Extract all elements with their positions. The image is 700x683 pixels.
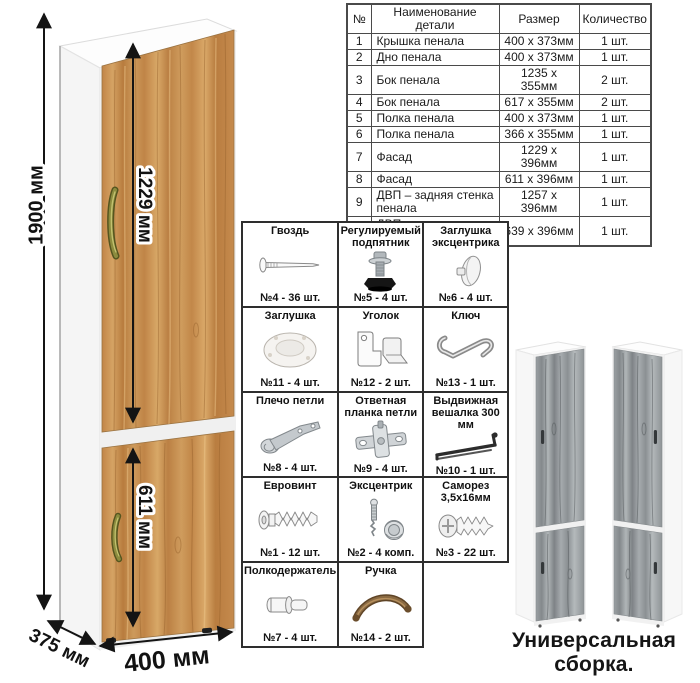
cell-name: Дно пенала: [371, 50, 499, 66]
cam-lock-icon: [352, 492, 410, 547]
hardware-count: №7 - 4 шт.: [263, 632, 317, 644]
cell-name: Бок пенала: [371, 66, 499, 95]
header-num: №: [347, 4, 371, 34]
upper-door-dimension-label: 1229 мм: [134, 167, 155, 243]
hardware-title: Уголок: [363, 310, 399, 322]
cell-name: Бок пенала: [371, 95, 499, 111]
hardware-cell-plug: Заглушка №11 - 4 шт.: [242, 307, 338, 392]
cell-qty: 2 шт.: [579, 95, 651, 111]
cabinet-foot-right: [202, 628, 212, 634]
hardware-cell-euro-screw: Евровинт №1 - 12 шт.: [242, 477, 338, 562]
cell-size: 400 х 373мм: [499, 50, 579, 66]
cell-num: 4: [347, 95, 371, 111]
table-row: 9 ДВП – задняя стенка пенала 1257 х 396м…: [347, 188, 651, 217]
header-name: Наименование детали: [371, 4, 499, 34]
hardware-title: Заглушка эксцентрика: [425, 225, 506, 249]
cell-num: 3: [347, 66, 371, 95]
cell-size: 639 х 396мм: [499, 217, 579, 247]
cell-num: 6: [347, 127, 371, 143]
lower-door-dimension-label: 611 мм: [134, 485, 155, 549]
hardware-title: Выдвижная вешалка 300 мм: [425, 395, 506, 431]
hardware-title: Гвоздь: [271, 225, 309, 237]
cell-name: Крышка пенала: [371, 34, 499, 50]
hardware-cell-corner-bracket: Уголок №12 - 2 шт.: [338, 307, 423, 392]
hardware-title: Ручка: [365, 565, 396, 577]
hardware-count: №2 - 4 комп.: [347, 547, 414, 559]
hardware-cell-shelf-pin: Полкодержатель №7 - 4 шт.: [242, 562, 338, 647]
euro-screw-icon: [255, 492, 325, 547]
cell-qty: 1 шт.: [579, 143, 651, 172]
cabinet-side-panel: [60, 46, 100, 650]
table-row: 8 Фасад 611 х 396мм 1 шт.: [347, 172, 651, 188]
parts-table: № Наименование детали Размер Количество …: [346, 3, 652, 247]
height-dimension-label: 1900 мм: [25, 165, 47, 245]
hardware-count: №6 - 4 шт.: [439, 292, 493, 304]
self-tapping-screw-icon: [435, 504, 497, 547]
cell-qty: 1 шт.: [579, 172, 651, 188]
table-row: 7 Фасад 1229 х 396мм 1 шт.: [347, 143, 651, 172]
mini-cabinet-left: [516, 342, 586, 628]
cell-name: Фасад: [371, 172, 499, 188]
cell-name: Полка пенала: [371, 127, 499, 143]
hardware-cell-cam-cover: Заглушка эксцентрика №6 - 4 шт.: [423, 222, 508, 307]
hardware-title: Плечо петли: [256, 395, 324, 407]
hardware-count: №3 - 22 шт.: [436, 547, 496, 559]
hardware-title: Саморез 3,5х16мм: [425, 480, 506, 504]
hardware-title: Регулируемый подпятник: [340, 225, 421, 249]
hardware-cell-hinge-plate: Ответная планка петли №9 - 4 шт.: [338, 392, 423, 477]
table-row: 2 Дно пенала 400 х 373мм 1 шт.: [347, 50, 651, 66]
table-row: 4 Бок пенала 617 х 355мм 2 шт.: [347, 95, 651, 111]
upper-door: [102, 30, 234, 432]
shelf-pin-icon: [262, 577, 318, 632]
hardware-grid: Гвоздь №4 - 36 шт. Регулируемый подпятни…: [241, 221, 509, 648]
cell-num: 5: [347, 111, 371, 127]
hardware-cell-hinge-arm: Плечо петли №8 - 4 шт.: [242, 392, 338, 477]
cell-qty: 2 шт.: [579, 66, 651, 95]
cell-num: 2: [347, 50, 371, 66]
hardware-count: №1 - 12 шт.: [260, 547, 320, 559]
mini-cabinet-right: [612, 342, 682, 628]
hardware-title: Ключ: [451, 310, 480, 322]
cell-qty: 1 шт.: [579, 188, 651, 217]
hardware-count: №13 - 1 шт.: [436, 377, 496, 389]
corner-bracket-icon: [350, 322, 412, 377]
table-row: 6 Полка пенала 366 х 355мм 1 шт.: [347, 127, 651, 143]
cell-size: 400 х 373мм: [499, 34, 579, 50]
hardware-title: Заглушка: [265, 310, 316, 322]
hardware-title: Евровинт: [264, 480, 317, 492]
universal-assembly-illustration: [496, 334, 700, 630]
hinge-plate-icon: [350, 419, 412, 463]
hardware-title: Ответная планка петли: [340, 395, 421, 419]
cell-size: 366 х 355мм: [499, 127, 579, 143]
cell-num: 1: [347, 34, 371, 50]
cell-size: 1235 х 355мм: [499, 66, 579, 95]
hardware-title: Эксцентрик: [349, 480, 412, 492]
hardware-count: №5 - 4 шт.: [354, 292, 408, 304]
cell-name: Полка пенала: [371, 111, 499, 127]
assembly-sheet: 1900 мм 1229 мм 611 мм 375 мм 400 мм № Н…: [0, 0, 700, 683]
universal-assembly-caption: Универсальная сборка.: [488, 629, 700, 677]
hardware-title: Полкодержатель: [244, 565, 336, 577]
cam-cover-icon: [441, 249, 491, 292]
cell-qty: 1 шт.: [579, 127, 651, 143]
cell-size: 611 х 396мм: [499, 172, 579, 188]
cell-size: 1229 х 396мм: [499, 143, 579, 172]
table-row: 3 Бок пенала 1235 х 355мм 2 шт.: [347, 66, 651, 95]
cell-qty: 1 шт.: [579, 217, 651, 247]
hex-key-icon: [433, 322, 499, 377]
hardware-cell-cam-lock: Эксцентрик №2 - 4 комп.: [338, 477, 423, 562]
hardware-count: №14 - 2 шт.: [351, 632, 411, 644]
cell-size: 1257 х 396мм: [499, 188, 579, 217]
hardware-cell-handle: Ручка №14 - 2 шт.: [338, 562, 423, 647]
cell-name: ДВП – задняя стенка пенала: [371, 188, 499, 217]
handle-icon: [348, 577, 414, 632]
cell-num: 9: [347, 188, 371, 217]
hardware-cell-nail: Гвоздь №4 - 36 шт.: [242, 222, 338, 307]
hardware-count: №12 - 2 шт.: [351, 377, 411, 389]
width-dimension-label: 400 мм: [123, 641, 211, 678]
cell-qty: 1 шт.: [579, 34, 651, 50]
cabinet-foot-left: [106, 638, 116, 644]
hardware-count: №11 - 4 шт.: [260, 377, 320, 389]
hardware-count: №10 - 1 шт.: [436, 465, 496, 477]
header-size: Размер: [499, 4, 579, 34]
lower-door: [102, 431, 234, 642]
hardware-count: №4 - 36 шт.: [260, 292, 320, 304]
table-row: 5 Полка пенала 400 х 373мм 1 шт.: [347, 111, 651, 127]
adjustable-foot-icon: [354, 249, 408, 292]
cell-qty: 1 шт.: [579, 111, 651, 127]
plug-icon: [258, 322, 322, 377]
hardware-count: №8 - 4 шт.: [263, 462, 317, 474]
hinge-arm-icon: [256, 407, 324, 462]
cell-num: 7: [347, 143, 371, 172]
cell-num: 8: [347, 172, 371, 188]
hardware-cell-adjustable-foot: Регулируемый подпятник №5 - 4 шт.: [338, 222, 423, 307]
cell-size: 617 х 355мм: [499, 95, 579, 111]
pullout-hanger-icon: [431, 431, 501, 465]
cell-size: 400 х 373мм: [499, 111, 579, 127]
cell-name: Фасад: [371, 143, 499, 172]
parts-table-header-row: № Наименование детали Размер Количество: [347, 4, 651, 34]
nail-icon: [255, 237, 325, 292]
cell-qty: 1 шт.: [579, 50, 651, 66]
hardware-count: №9 - 4 шт.: [354, 463, 408, 475]
table-row: 1 Крышка пенала 400 х 373мм 1 шт.: [347, 34, 651, 50]
header-qty: Количество: [579, 4, 651, 34]
